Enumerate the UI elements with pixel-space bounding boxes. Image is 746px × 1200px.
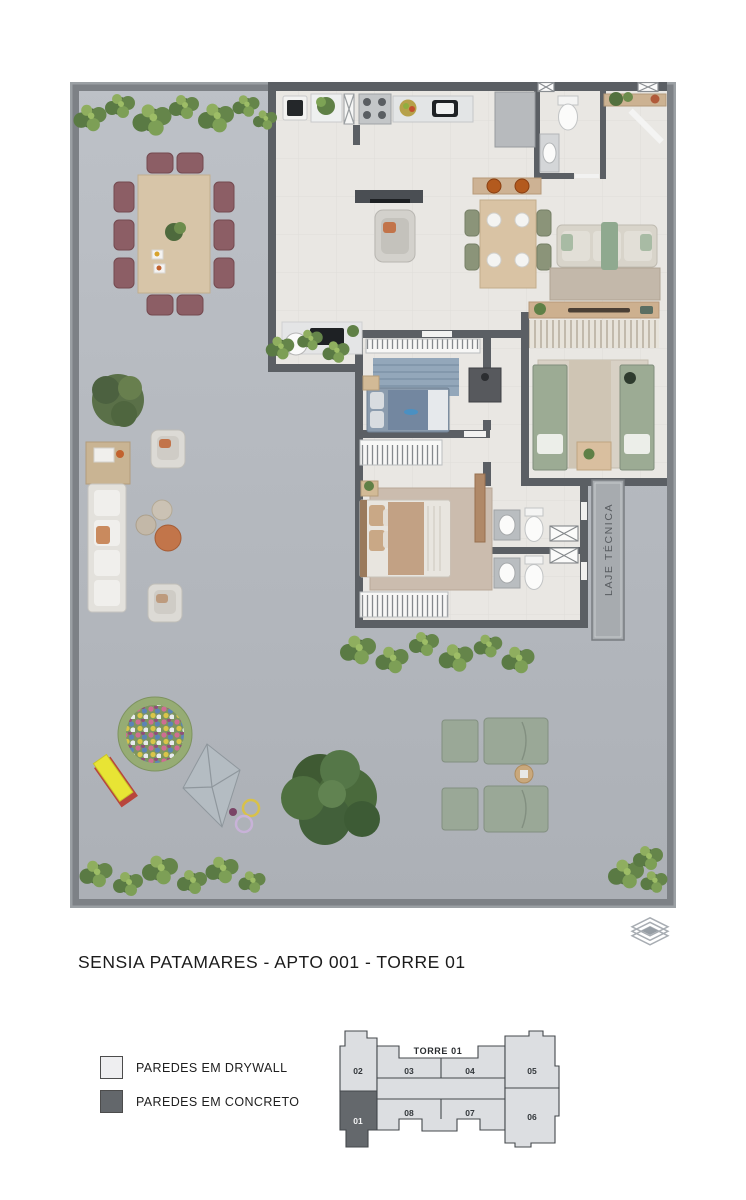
terrace-chair bbox=[114, 182, 134, 212]
dining-chair bbox=[537, 210, 551, 236]
laje-tecnica-label: LAJE TÉCNICA bbox=[602, 503, 615, 596]
wardrobe bbox=[360, 592, 448, 617]
terrace-chair bbox=[147, 153, 173, 173]
terrace-chair bbox=[114, 220, 134, 250]
sun-lounger bbox=[484, 786, 548, 832]
legend: PAREDES EM DRYWALL PAREDES EM CONCRETO bbox=[100, 1056, 299, 1124]
sun-lounger bbox=[484, 718, 548, 764]
terrace-chair bbox=[214, 182, 234, 212]
dining-chair bbox=[465, 244, 479, 270]
keyplan-label-08: 08 bbox=[404, 1108, 414, 1118]
living-rug bbox=[550, 268, 660, 300]
stacked-diamonds-icon bbox=[630, 916, 670, 952]
dining-console bbox=[473, 178, 541, 194]
tower-keyplan: TORRE 01 01 02 03 04 05 06 07 08 bbox=[337, 1028, 561, 1150]
stove bbox=[359, 94, 391, 124]
page-title: SENSIA PATAMARES - APTO 001 - TORRE 01 bbox=[78, 952, 718, 973]
keyplan-label-05: 05 bbox=[527, 1066, 537, 1076]
keyplan-label-02: 02 bbox=[353, 1066, 363, 1076]
terrace-chair bbox=[147, 295, 173, 315]
wardrobe bbox=[360, 440, 442, 465]
door-panel bbox=[475, 474, 485, 542]
legend-label: PAREDES EM DRYWALL bbox=[136, 1061, 287, 1075]
toilet bbox=[525, 565, 543, 590]
terrace-chair bbox=[177, 295, 203, 315]
terrace-chair bbox=[177, 153, 203, 173]
terrace-chair bbox=[214, 220, 234, 250]
drywall-swatch bbox=[100, 1056, 123, 1079]
lounger-cushion bbox=[442, 720, 478, 762]
nightstand bbox=[363, 376, 379, 390]
floorplan-svg: LAJE TÉCNICA bbox=[70, 82, 676, 908]
keyplan-unit-02 bbox=[340, 1031, 377, 1091]
dining-chair bbox=[465, 210, 479, 236]
legend-label: PAREDES EM CONCRETO bbox=[136, 1095, 299, 1109]
keyplan-tower-label: TORRE 01 bbox=[414, 1046, 463, 1056]
keyplan-label-07: 07 bbox=[465, 1108, 475, 1118]
keyplan-label-01: 01 bbox=[353, 1116, 363, 1126]
legend-item-drywall: PAREDES EM DRYWALL bbox=[100, 1056, 299, 1079]
keyplan-label-04: 04 bbox=[465, 1066, 475, 1076]
deck-slats bbox=[529, 320, 659, 348]
lounger-cushion bbox=[442, 788, 478, 830]
sofa-throw bbox=[601, 222, 618, 270]
pouf bbox=[155, 525, 181, 551]
toilet bbox=[525, 517, 543, 542]
terrace-chair bbox=[214, 258, 234, 288]
laje-tecnica-slab: LAJE TÉCNICA bbox=[592, 480, 624, 640]
powder-sink bbox=[543, 143, 556, 163]
kitchen-sink-black bbox=[287, 100, 303, 116]
dining-table bbox=[480, 200, 536, 288]
kids-bedroom bbox=[533, 360, 654, 470]
legend-item-concreto: PAREDES EM CONCRETO bbox=[100, 1090, 299, 1113]
floorplan-page: { "title": "SENSIA PATAMARES - APTO 001 … bbox=[0, 0, 746, 1200]
keyplan-unit-05 bbox=[505, 1031, 559, 1088]
pendant-lamp bbox=[487, 179, 501, 193]
ball-decor bbox=[624, 372, 636, 384]
toilet bbox=[559, 104, 578, 130]
dining-chair bbox=[537, 244, 551, 270]
keyplan-label-06: 06 bbox=[527, 1112, 537, 1122]
floorplan-render: LAJE TÉCNICA bbox=[70, 82, 676, 908]
pendant-lamp bbox=[515, 179, 529, 193]
terrace-chair bbox=[114, 258, 134, 288]
pouf bbox=[136, 515, 156, 535]
keyplan-label-03: 03 bbox=[404, 1066, 414, 1076]
wardrobe bbox=[366, 339, 480, 353]
concreto-swatch bbox=[100, 1090, 123, 1113]
refrigerator bbox=[495, 92, 535, 147]
bed-single bbox=[533, 365, 567, 470]
pouf bbox=[152, 500, 172, 520]
